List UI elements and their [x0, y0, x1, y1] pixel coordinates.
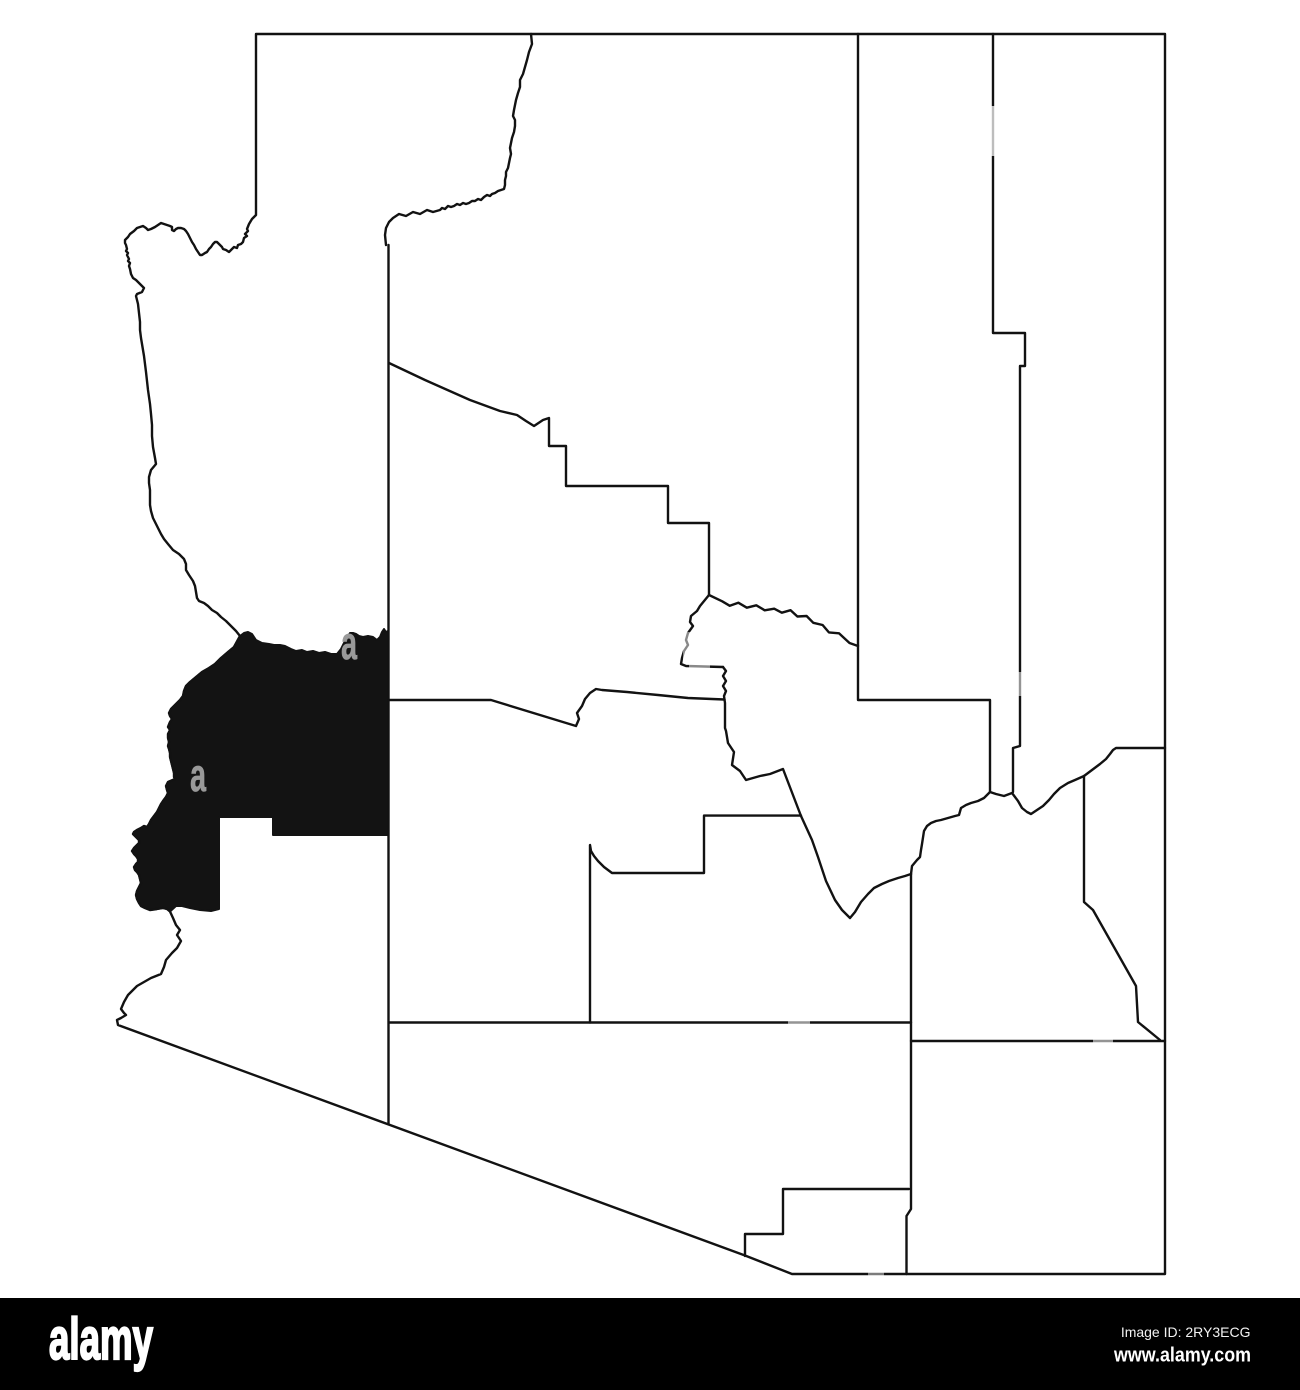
svg-text:alamy: alamy — [49, 1307, 153, 1372]
svg-text:www.alamy.com: www.alamy.com — [1113, 1345, 1251, 1367]
svg-text:a: a — [341, 618, 357, 670]
svg-text:a: a — [190, 750, 206, 802]
svg-text:Image ID: 2RY3ECG: Image ID: 2RY3ECG — [1121, 1324, 1251, 1340]
